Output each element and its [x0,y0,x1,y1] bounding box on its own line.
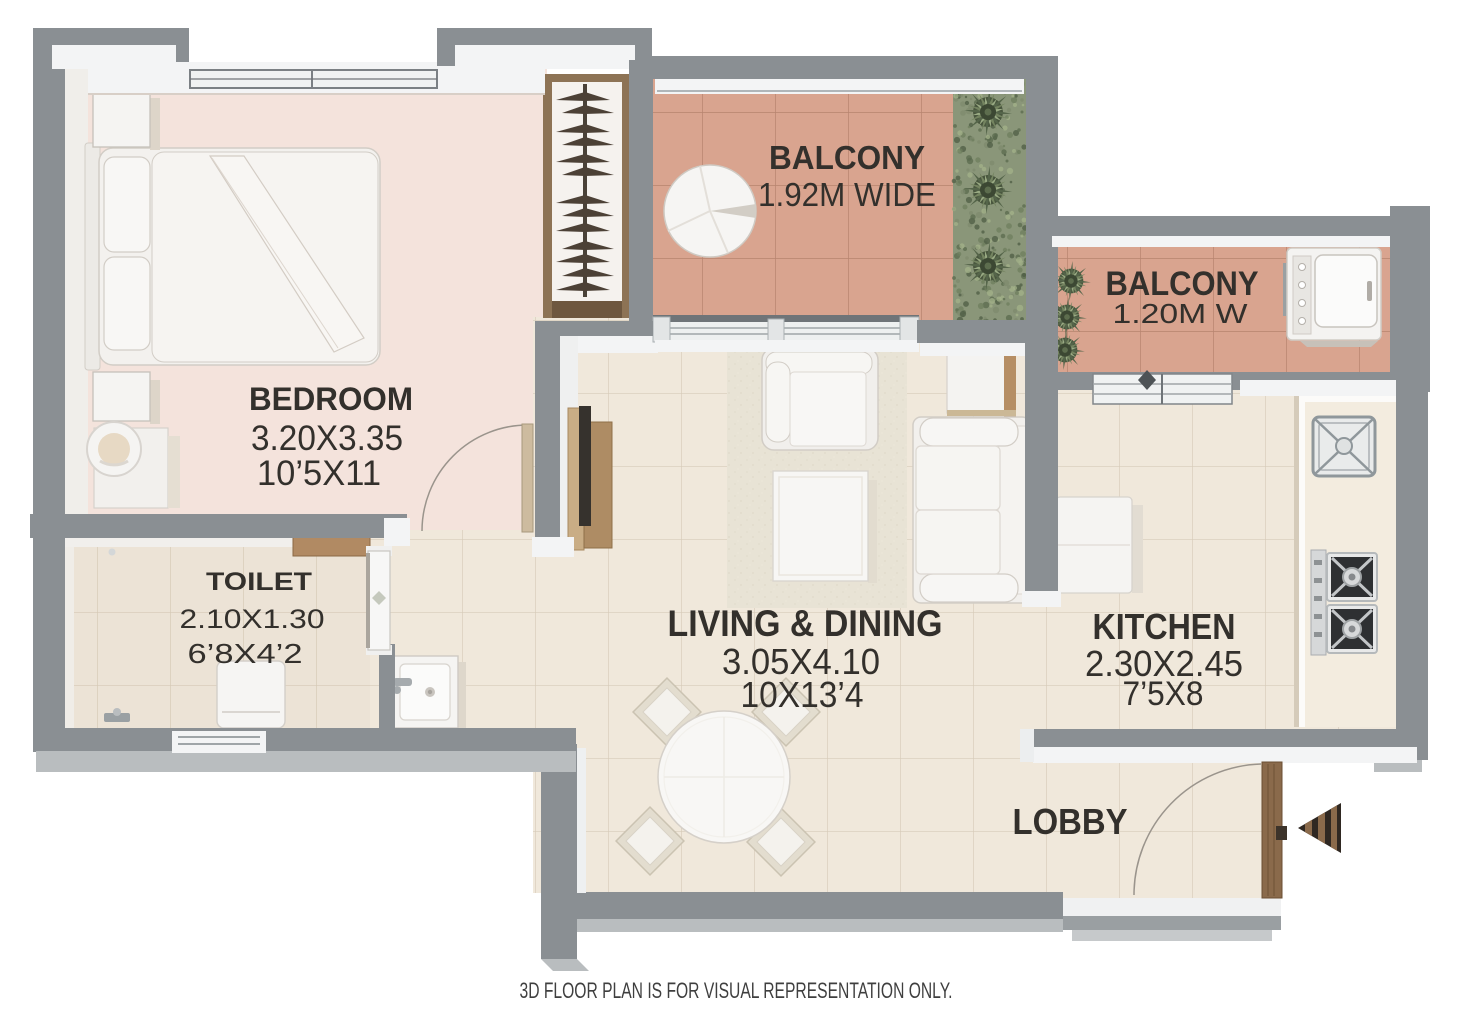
svg-text:10X13’4: 10X13’4 [741,674,864,715]
svg-text:3.20X3.35: 3.20X3.35 [251,419,403,458]
svg-text:KITCHEN: KITCHEN [1093,606,1236,647]
svg-text:10’5X11: 10’5X11 [257,454,381,493]
svg-text:LIVING & DINING: LIVING & DINING [668,603,943,644]
svg-text:1.92M WIDE: 1.92M WIDE [758,176,936,213]
svg-text:BALCONY: BALCONY [769,139,925,176]
svg-text:LOBBY: LOBBY [1013,801,1128,842]
svg-text:1.20M W: 1.20M W [1113,298,1249,329]
svg-text:6’8X4’2: 6’8X4’2 [188,638,303,669]
svg-text:7’5X8: 7’5X8 [1123,675,1204,713]
svg-text:3D FLOOR PLAN IS FOR VISUAL RE: 3D FLOOR PLAN IS FOR VISUAL REPRESENTATI… [520,978,953,1003]
svg-text:TOILET: TOILET [206,568,312,596]
svg-text:2.10X1.30: 2.10X1.30 [180,604,325,634]
svg-text:BEDROOM: BEDROOM [249,381,413,417]
